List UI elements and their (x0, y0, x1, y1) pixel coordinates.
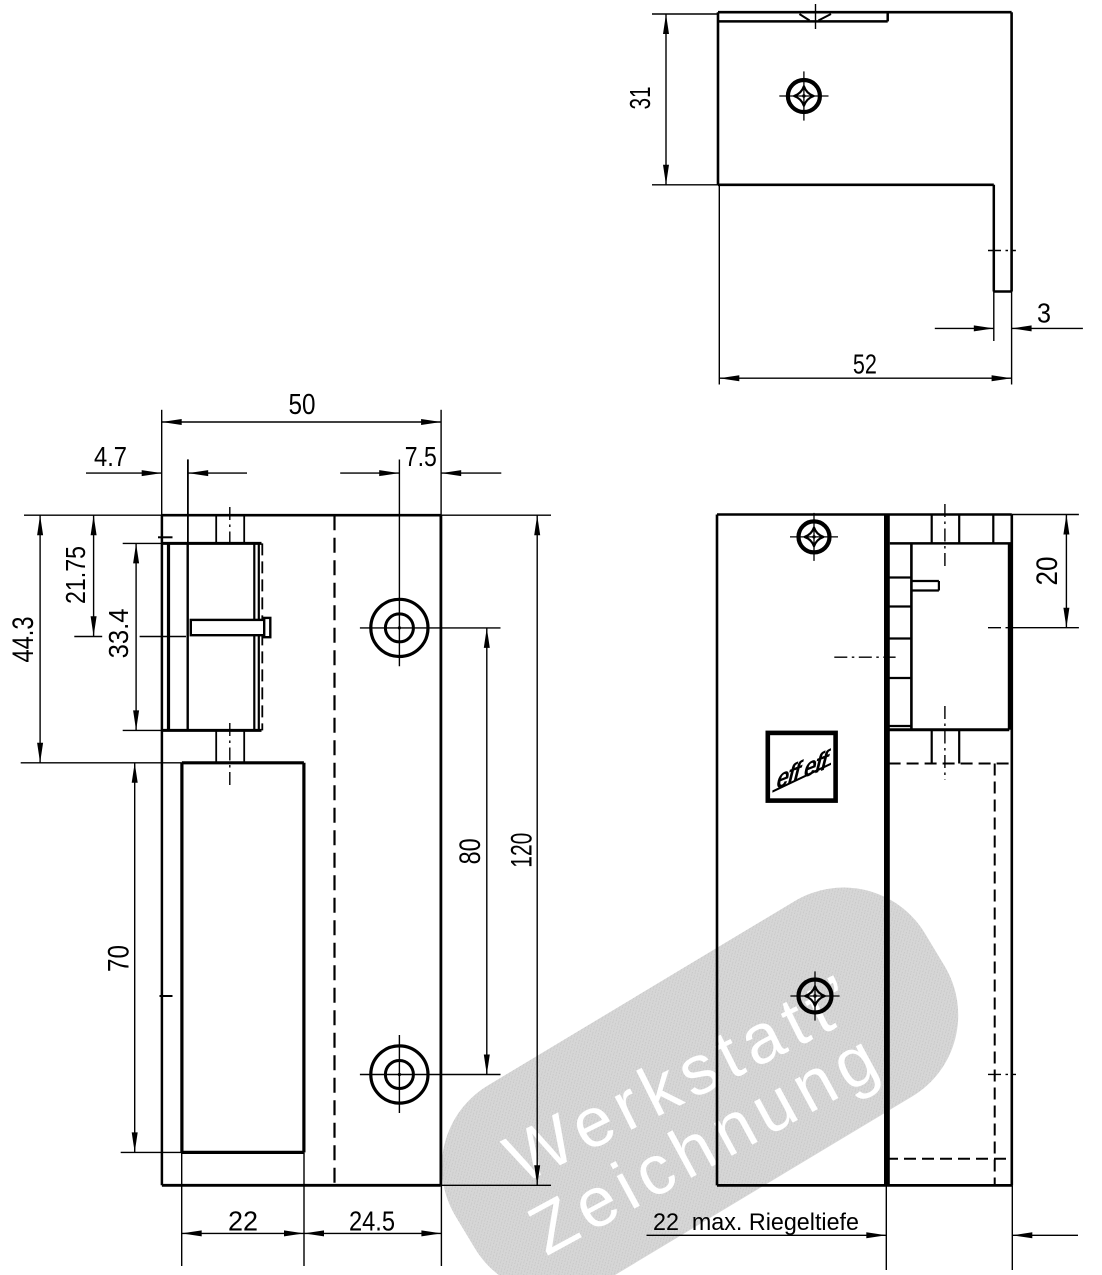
svg-text:80: 80 (454, 838, 487, 864)
svg-text:31: 31 (625, 87, 657, 110)
svg-text:22 max. Riegeltiefe: 22 max. Riegeltiefe (653, 1209, 859, 1236)
svg-text:70: 70 (103, 945, 136, 972)
svg-text:33.4: 33.4 (103, 608, 134, 658)
svg-text:20: 20 (1031, 557, 1064, 586)
svg-text:4.7: 4.7 (94, 441, 127, 472)
svg-text:24.5: 24.5 (349, 1206, 395, 1237)
svg-text:21.75: 21.75 (60, 546, 91, 604)
svg-text:7.5: 7.5 (405, 441, 437, 472)
svg-text:120: 120 (506, 833, 539, 868)
svg-text:22: 22 (228, 1206, 258, 1237)
svg-text:eff eff: eff eff (775, 744, 832, 795)
svg-text:44.3: 44.3 (7, 617, 40, 663)
svg-text:52: 52 (853, 349, 877, 380)
svg-text:3: 3 (1037, 298, 1051, 329)
svg-text:50: 50 (289, 389, 316, 421)
